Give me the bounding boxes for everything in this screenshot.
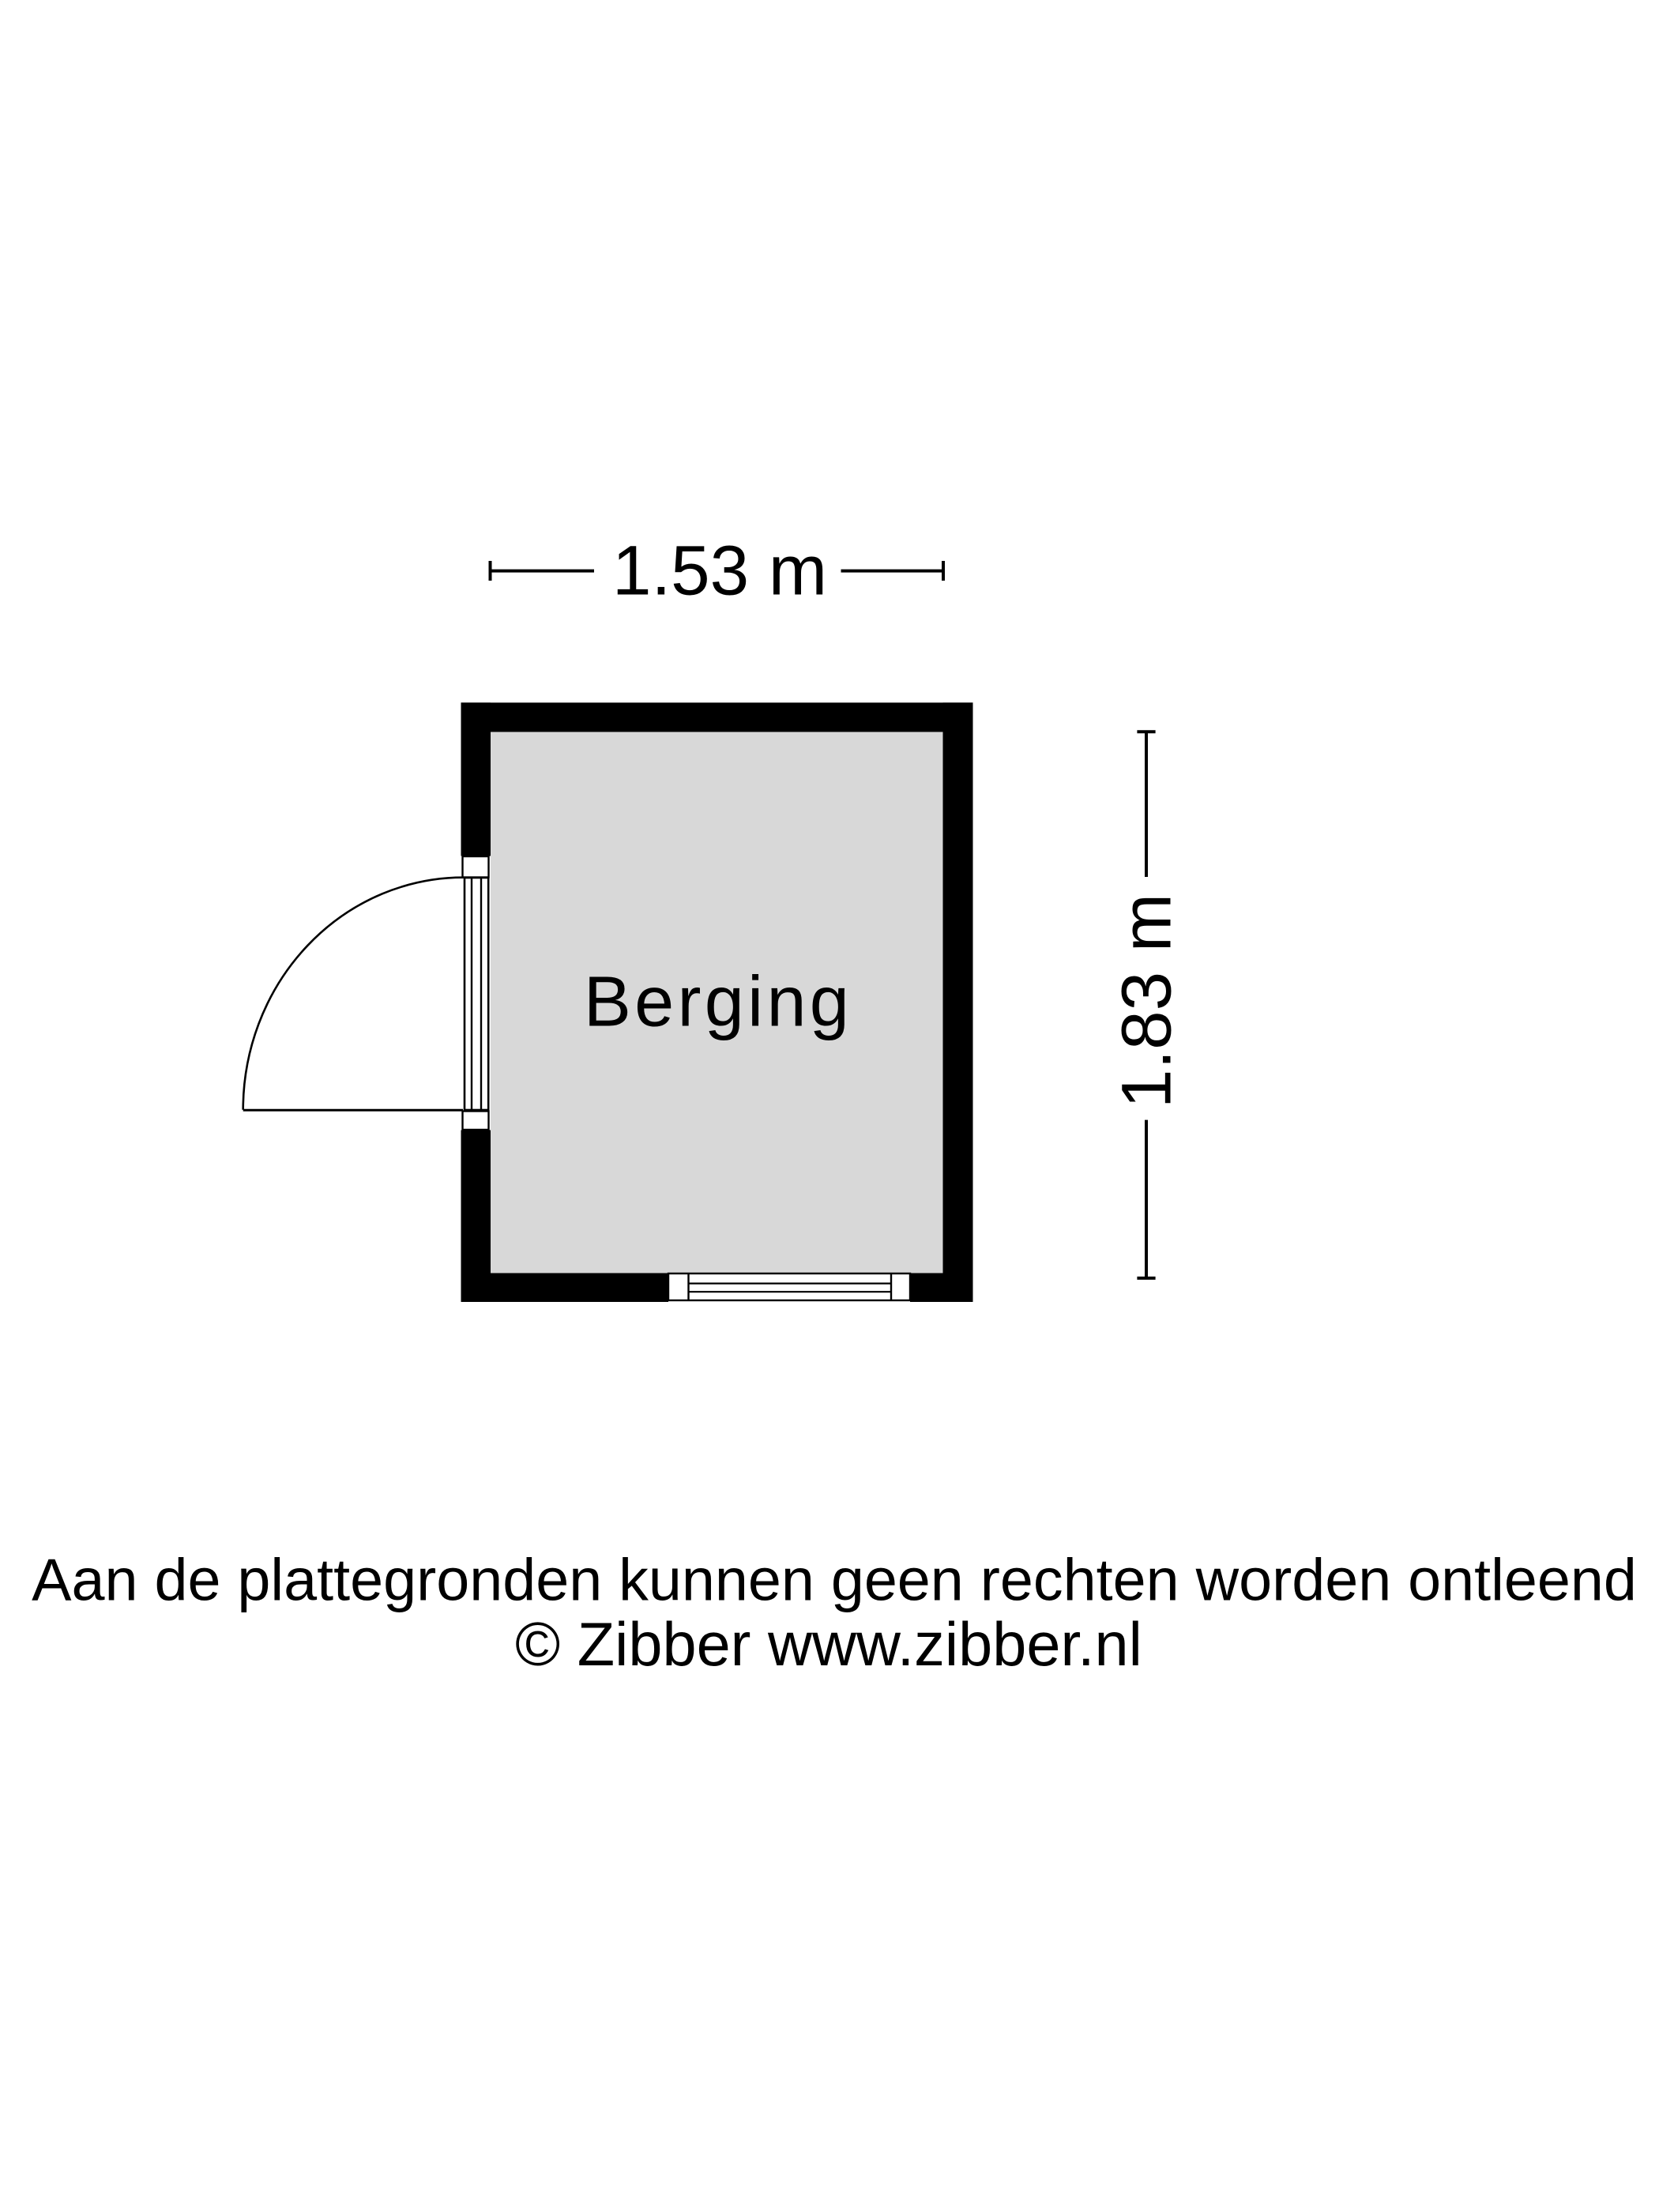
- svg-text:1.83 m: 1.83 m: [1107, 893, 1186, 1108]
- svg-text:© Zibber www.zibber.nl: © Zibber www.zibber.nl: [515, 1611, 1142, 1679]
- svg-text:Berging: Berging: [584, 963, 852, 1042]
- svg-text:Aan de plattegronden kunnen ge: Aan de plattegronden kunnen geen rechten…: [32, 1546, 1637, 1612]
- svg-text:1.53 m: 1.53 m: [612, 531, 827, 610]
